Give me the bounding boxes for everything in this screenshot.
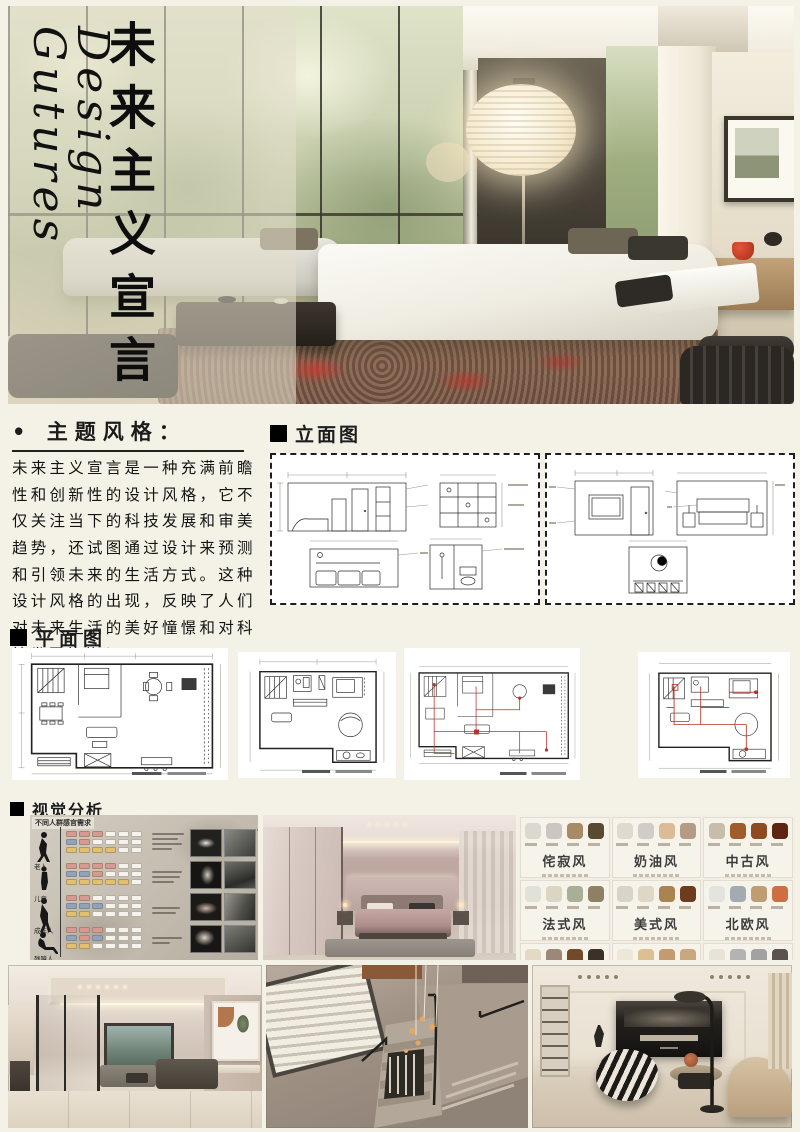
elevation-drawing-set-2: [547, 455, 789, 599]
ceiling-dots: [710, 975, 750, 979]
color-swatch: [659, 823, 675, 839]
plan-caption: [700, 770, 766, 773]
floor-plan-3: [404, 648, 580, 780]
elevation-drawing-set-1: [272, 455, 534, 599]
bullet-mark: •: [12, 419, 32, 444]
color-swatch: [525, 823, 541, 839]
swatch-codes: [525, 843, 605, 846]
eye-photo-tile: [190, 829, 222, 857]
wardrobe-seam: [289, 827, 290, 955]
arc-floor-lamp: [652, 981, 742, 1113]
color-swatch: [680, 949, 696, 960]
palette-style-cell: 新中式: [520, 943, 610, 960]
theme-style-heading: • 主题风格：: [12, 416, 244, 452]
glass-partition: [36, 995, 100, 1091]
stairs-drawing: [266, 965, 528, 1128]
ceiling-dots: [578, 975, 618, 979]
floor-plan-4: [638, 652, 790, 778]
red-bowl: [732, 242, 754, 260]
dark-vase: [764, 232, 782, 246]
color-swatch: [772, 949, 788, 960]
spotlights: [78, 985, 127, 989]
color-swatch: [709, 886, 725, 902]
floor-plan-2: [238, 652, 396, 778]
wardrobe: [263, 827, 343, 955]
hero-image: Design Gutures 未来主义宣言: [8, 6, 794, 404]
style-subtitle: [542, 937, 588, 940]
color-swatch: [525, 886, 541, 902]
artwork-picture: [735, 128, 779, 178]
style-name: 北欧风: [726, 914, 771, 933]
group-label: 儿童: [34, 893, 47, 903]
swatch-codes: [708, 906, 788, 909]
moodboard-title: 不同人群感官需求: [32, 817, 94, 829]
style-subtitle: [633, 874, 679, 877]
color-swatch: [659, 949, 675, 960]
electrical-lines-red: [667, 685, 758, 751]
lips-photo-tile: [190, 893, 222, 921]
color-swatch: [617, 823, 633, 839]
design-poster: Design Gutures 未来主义宣言 • 主题风格： 未来主义宣言是一种充…: [0, 0, 800, 1132]
note-block: [152, 907, 186, 917]
style-subtitle: [725, 937, 771, 940]
ceiling-dots: [367, 823, 407, 827]
mood-photo: [224, 925, 256, 953]
glass-mullion: [64, 995, 66, 1091]
plan-caption: [500, 772, 566, 775]
color-swatch: [659, 886, 675, 902]
hero-title-chinese: 未来主义宣言: [104, 20, 151, 404]
style-name: 侘寂风: [542, 851, 587, 870]
floor-plan-1: [12, 648, 228, 780]
ear-photo-tile: [190, 861, 222, 889]
framed-artwork: [724, 116, 794, 202]
lamp-pole: [522, 174, 525, 254]
cushion-charcoal: [628, 236, 688, 260]
mood-photo: [224, 893, 256, 921]
color-swatch: [638, 949, 654, 960]
plan-caption: [132, 772, 206, 775]
theme-heading-label: 主题风格：: [47, 419, 187, 444]
color-swatch: [709, 823, 725, 839]
group-label: 老人: [34, 861, 47, 871]
color-swatch: [730, 949, 746, 960]
style-palette-panel: 侘寂风 奶油风 中古风 法式风 美式风 北欧风: [518, 815, 795, 960]
color-swatch: [680, 886, 696, 902]
plan-caption: [302, 770, 372, 773]
style-name: 法式风: [542, 914, 587, 933]
style-subtitle: [725, 874, 771, 877]
swatch-codes: [616, 906, 696, 909]
palette-style-cell: 北欧风: [703, 880, 793, 941]
elevation-drawings-box-1: [270, 453, 540, 605]
nightstand: [453, 911, 469, 925]
chip-grid: [66, 895, 142, 917]
palette-style-cell: 侘寂风: [520, 817, 610, 878]
note-block: [152, 871, 186, 886]
plan-section-label: 平面图: [35, 624, 107, 651]
curtains: [768, 973, 792, 1069]
color-swatch: [751, 949, 767, 960]
swatch-codes: [525, 906, 605, 909]
note-block: [152, 833, 186, 853]
moodboard-panel: 不同人群感官需求 老人 儿童 成年人 残障人: [30, 815, 258, 960]
section-marker-square: [10, 802, 24, 816]
color-swatch: [638, 823, 654, 839]
style-subtitle: [633, 937, 679, 940]
swatch-codes: [616, 843, 696, 846]
floor-joints: [8, 1091, 262, 1128]
elevation-section-header: 立面图: [270, 420, 361, 447]
style-subtitle: [542, 874, 588, 877]
color-swatch: [730, 823, 746, 839]
color-swatch: [546, 949, 562, 960]
staircase-photo: [266, 965, 528, 1128]
swatch-codes: [708, 843, 788, 846]
elevation-section-label: 立面图: [295, 420, 361, 447]
bedside-lamp: [343, 903, 347, 907]
wardrobe-seam: [315, 827, 316, 955]
color-swatch: [617, 949, 633, 960]
color-swatch: [588, 886, 604, 902]
color-swatch: [751, 886, 767, 902]
bedside-lamp: [459, 903, 463, 907]
group-label: 残障人: [34, 953, 54, 960]
axis-line: [60, 827, 61, 957]
electrical-lines-red: [433, 683, 548, 753]
style-name: 美式风: [634, 914, 679, 933]
striped-ottoman: [680, 346, 794, 404]
paper-disc: [426, 142, 470, 182]
color-swatch: [772, 823, 788, 839]
palette-style-cell: 轻奢风: [703, 943, 793, 960]
color-swatch: [567, 823, 583, 839]
sofa-dark: [156, 1059, 218, 1089]
tv-livingroom-photo: [532, 965, 792, 1128]
coffee-table-small: [126, 1073, 148, 1083]
color-swatch: [772, 886, 788, 902]
chip-grid: [66, 927, 142, 949]
mood-photo: [224, 861, 256, 889]
color-swatch: [751, 823, 767, 839]
color-swatch: [546, 823, 562, 839]
color-swatch: [638, 886, 654, 902]
color-swatch: [588, 823, 604, 839]
wall-artwork: [212, 1001, 260, 1061]
style-name: 奶油风: [634, 851, 679, 870]
mood-photo: [224, 829, 256, 857]
palette-style-cell: 美式风: [612, 880, 702, 941]
living-hall-photo: [8, 965, 262, 1128]
hand-photo-tile: [190, 925, 222, 953]
note-block: [152, 937, 186, 947]
group-label: 成年人: [34, 925, 54, 935]
color-swatch: [546, 886, 562, 902]
color-swatch: [617, 886, 633, 902]
area-rug: [325, 939, 475, 957]
chip-grid: [66, 863, 142, 885]
display-shelf: [540, 985, 570, 1077]
palette-style-cell: 奶油风: [612, 817, 702, 878]
bedroom-photo: [263, 815, 516, 960]
elevation-drawings-box-2: [545, 453, 795, 605]
sheer-curtain: [459, 831, 516, 953]
color-swatch: [709, 949, 725, 960]
style-name: 中古风: [726, 851, 771, 870]
color-swatch: [730, 886, 746, 902]
palette-style-cell: 法式风: [520, 880, 610, 941]
color-swatch: [567, 886, 583, 902]
striped-armchair: [596, 1049, 658, 1101]
color-swatch: [525, 949, 541, 960]
plan-section-header: 平面图: [10, 624, 107, 651]
mood-photo: [257, 829, 258, 831]
palette-style-cell: 原木风: [612, 943, 702, 960]
paper-lantern-lamp: [466, 84, 576, 176]
section-marker-square: [10, 629, 27, 646]
nightstand: [337, 911, 353, 925]
section-marker-square: [270, 425, 287, 442]
color-swatch: [680, 823, 696, 839]
chip-grid: [66, 831, 142, 853]
color-swatch: [588, 949, 604, 960]
color-swatch: [567, 949, 583, 960]
palette-style-cell: 中古风: [703, 817, 793, 878]
